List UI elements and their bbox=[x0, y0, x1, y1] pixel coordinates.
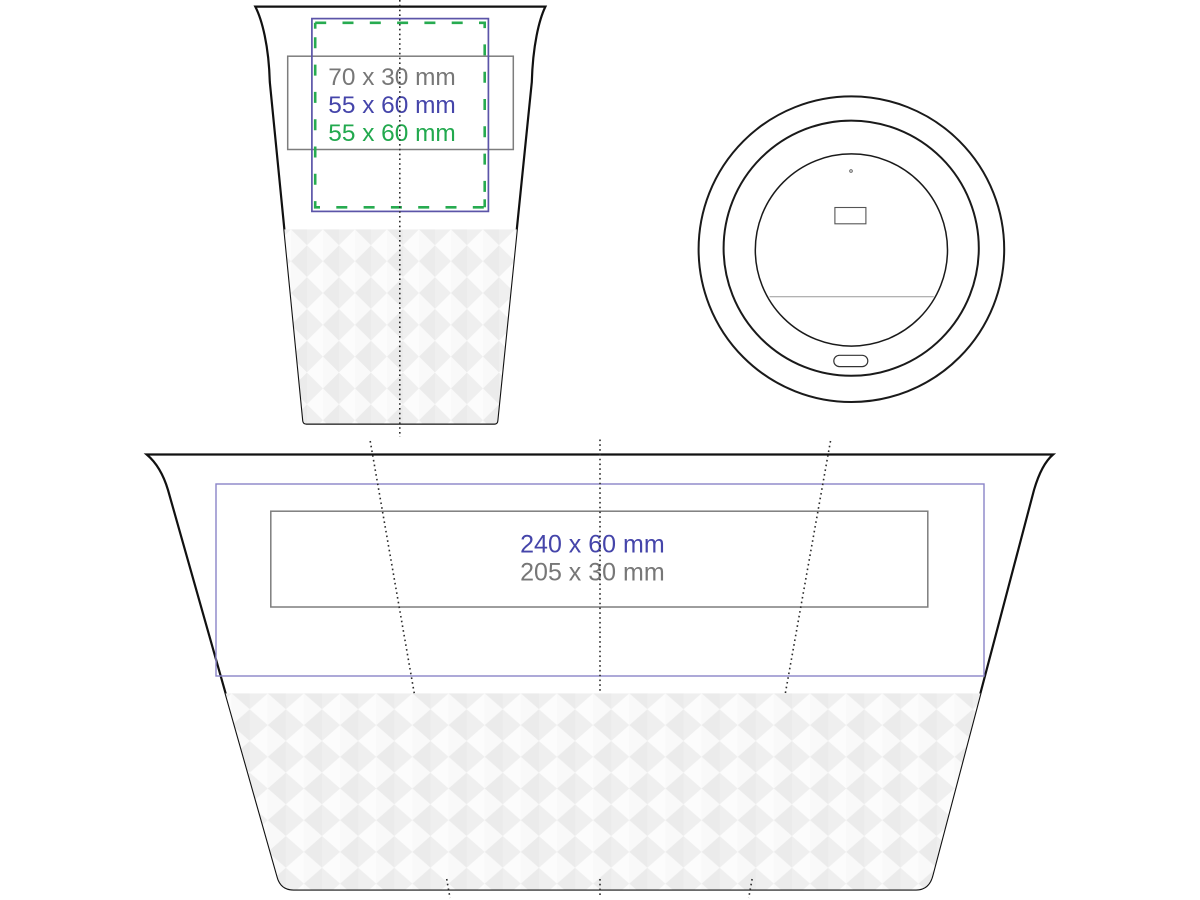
svg-text:205 x 30 mm: 205 x 30 mm bbox=[520, 558, 665, 586]
svg-text:55 x 60 mm: 55 x 60 mm bbox=[328, 120, 455, 147]
svg-text:70 x 30 mm: 70 x 30 mm bbox=[328, 64, 455, 91]
svg-text:240 x 60 mm: 240 x 60 mm bbox=[520, 530, 665, 558]
svg-text:55 x 60 mm: 55 x 60 mm bbox=[328, 92, 455, 119]
